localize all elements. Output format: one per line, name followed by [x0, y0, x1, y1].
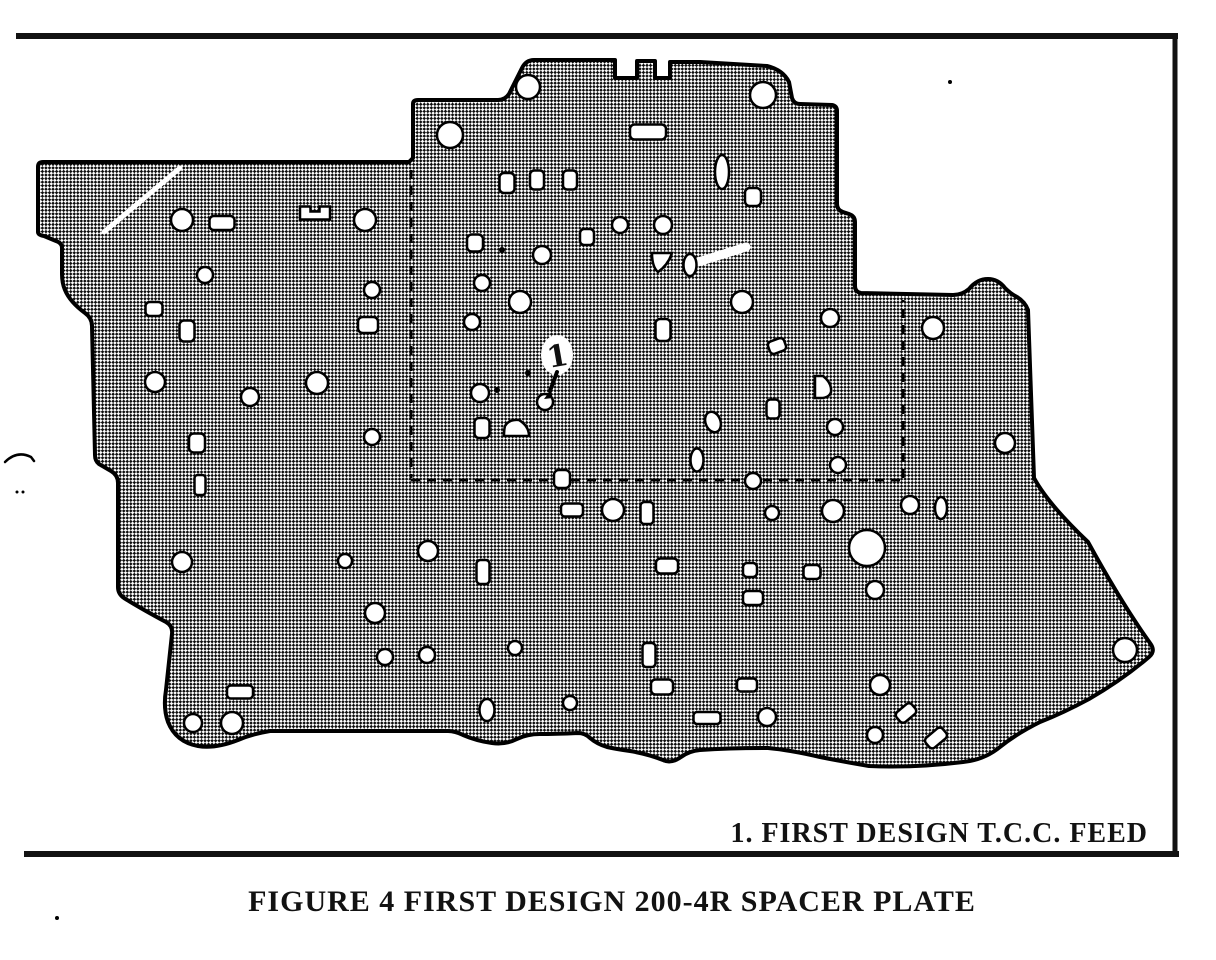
plate-hole-circle	[765, 506, 779, 520]
plate-hole-slot	[656, 319, 671, 341]
plate-hole-slot	[804, 565, 821, 579]
plate-hole-circle	[654, 216, 672, 234]
plate-hole-circle	[354, 209, 376, 231]
scan-speck	[55, 916, 59, 920]
plate-hole-slot	[477, 560, 490, 584]
plate-hole-circle	[364, 429, 380, 445]
plate-hole-slot	[554, 470, 570, 488]
plate-hole-slot	[767, 400, 780, 419]
plate-hole-slot	[530, 171, 544, 190]
plate-hole-slot	[195, 475, 206, 495]
plate-hole-circle	[509, 291, 531, 313]
plate-hole-slot	[358, 317, 378, 333]
plate-hole-circle	[563, 696, 577, 710]
plate-hole-circle	[516, 75, 540, 99]
plate-hole-circle	[821, 309, 839, 327]
plate-hole-oval	[691, 449, 704, 472]
plate-hole-slot	[189, 434, 205, 453]
plate-hole-circle	[471, 384, 489, 402]
plate-hole-circle	[745, 473, 761, 489]
plate-hole-circle	[750, 82, 776, 108]
plate-hole-slot	[737, 679, 757, 692]
plate-hole-slot	[745, 188, 761, 206]
plate-hole-circle	[508, 641, 522, 655]
spacer-plate-figure: 1 1. FIRST DESIGN T.C.C. FEED FIGURE 4 F…	[0, 0, 1216, 960]
plate-hole-circle	[849, 530, 885, 566]
plate-hole-circle	[533, 246, 551, 264]
plate-hole-oval	[480, 699, 495, 721]
plate-hole-circle	[418, 541, 438, 561]
scan-speck	[499, 247, 505, 253]
figure-caption: FIGURE 4 FIRST DESIGN 200-4R SPACER PLAT…	[248, 885, 976, 918]
plate-hole-circle	[338, 554, 352, 568]
plate-hole-slot	[630, 125, 666, 140]
plate-hole-circle	[1113, 638, 1137, 662]
plate-hole-circle	[995, 433, 1015, 453]
scan-speck	[494, 387, 500, 393]
plate-hole-circle	[437, 122, 463, 148]
plate-hole-slot	[467, 235, 483, 252]
plate-hole-circle	[602, 499, 624, 521]
plate-hole-circle	[827, 419, 843, 435]
plate-hole-circle	[758, 708, 776, 726]
plate-hole-slot	[694, 712, 721, 724]
plate-hole-slot	[656, 559, 678, 574]
plate-hole-circle	[830, 457, 846, 473]
plate-hole-slot	[580, 229, 594, 245]
plate-hole-oval	[935, 497, 947, 519]
plate-hole-circle	[867, 727, 883, 743]
plate-hole-slot	[500, 173, 515, 193]
plate-hole-circle	[866, 581, 884, 599]
scan-speck	[525, 370, 531, 376]
plate-hole-circle	[184, 714, 202, 732]
plate-hole-oval	[715, 155, 729, 189]
plate-hole-circle	[822, 500, 844, 522]
plate-hole-circle	[221, 712, 243, 734]
plate-hole-circle	[241, 388, 259, 406]
scan-speck	[16, 491, 19, 494]
plate-hole-slot	[210, 216, 235, 230]
plate-hole-circle	[464, 314, 480, 330]
plate-hole-circle	[145, 372, 165, 392]
plate-hole-circle	[365, 603, 385, 623]
scan-speck	[948, 80, 952, 84]
plate-hole-circle	[377, 649, 393, 665]
spacer-plate-drawing: 1	[5, 60, 1153, 920]
plate-hole-slot	[146, 302, 163, 316]
plate-hole-circle	[171, 209, 193, 231]
plate-hole-circle	[306, 372, 328, 394]
plate-hole-circle	[901, 496, 919, 514]
plate-hole-circle	[922, 317, 944, 339]
plate-hole-circle	[419, 647, 435, 663]
tcc-feed-annotation-label: 1. FIRST DESIGN T.C.C. FEED	[730, 818, 1148, 849]
plate-hole-circle	[197, 267, 213, 283]
plate-hole-slot	[651, 680, 673, 695]
plate-hole-slot	[561, 504, 583, 517]
plate-hole-circle	[870, 675, 890, 695]
plate-hole-circle	[364, 282, 380, 298]
plate-hole-slot	[641, 502, 654, 524]
plate-hole-slot	[563, 171, 577, 190]
plate-hole-slot	[743, 563, 757, 577]
plate-hole-slot	[643, 643, 656, 667]
plate-hole-circle	[172, 552, 192, 572]
plate-hole-slot	[227, 686, 253, 699]
scan-speck	[22, 491, 25, 494]
plate-hole-circle	[474, 275, 490, 291]
scanned-manual-page: 1 1. FIRST DESIGN T.C.C. FEED FIGURE 4 F…	[0, 0, 1216, 960]
plate-hole-circle	[731, 291, 753, 313]
plate-hole-slot	[475, 418, 490, 438]
plate-hole-slot	[180, 321, 195, 342]
plate-hole-slot	[743, 591, 763, 605]
margin-pen-mark	[5, 454, 34, 462]
plate-outline	[38, 60, 1153, 767]
plate-hole-circle	[612, 217, 628, 233]
plate-hole-oval	[684, 254, 697, 276]
